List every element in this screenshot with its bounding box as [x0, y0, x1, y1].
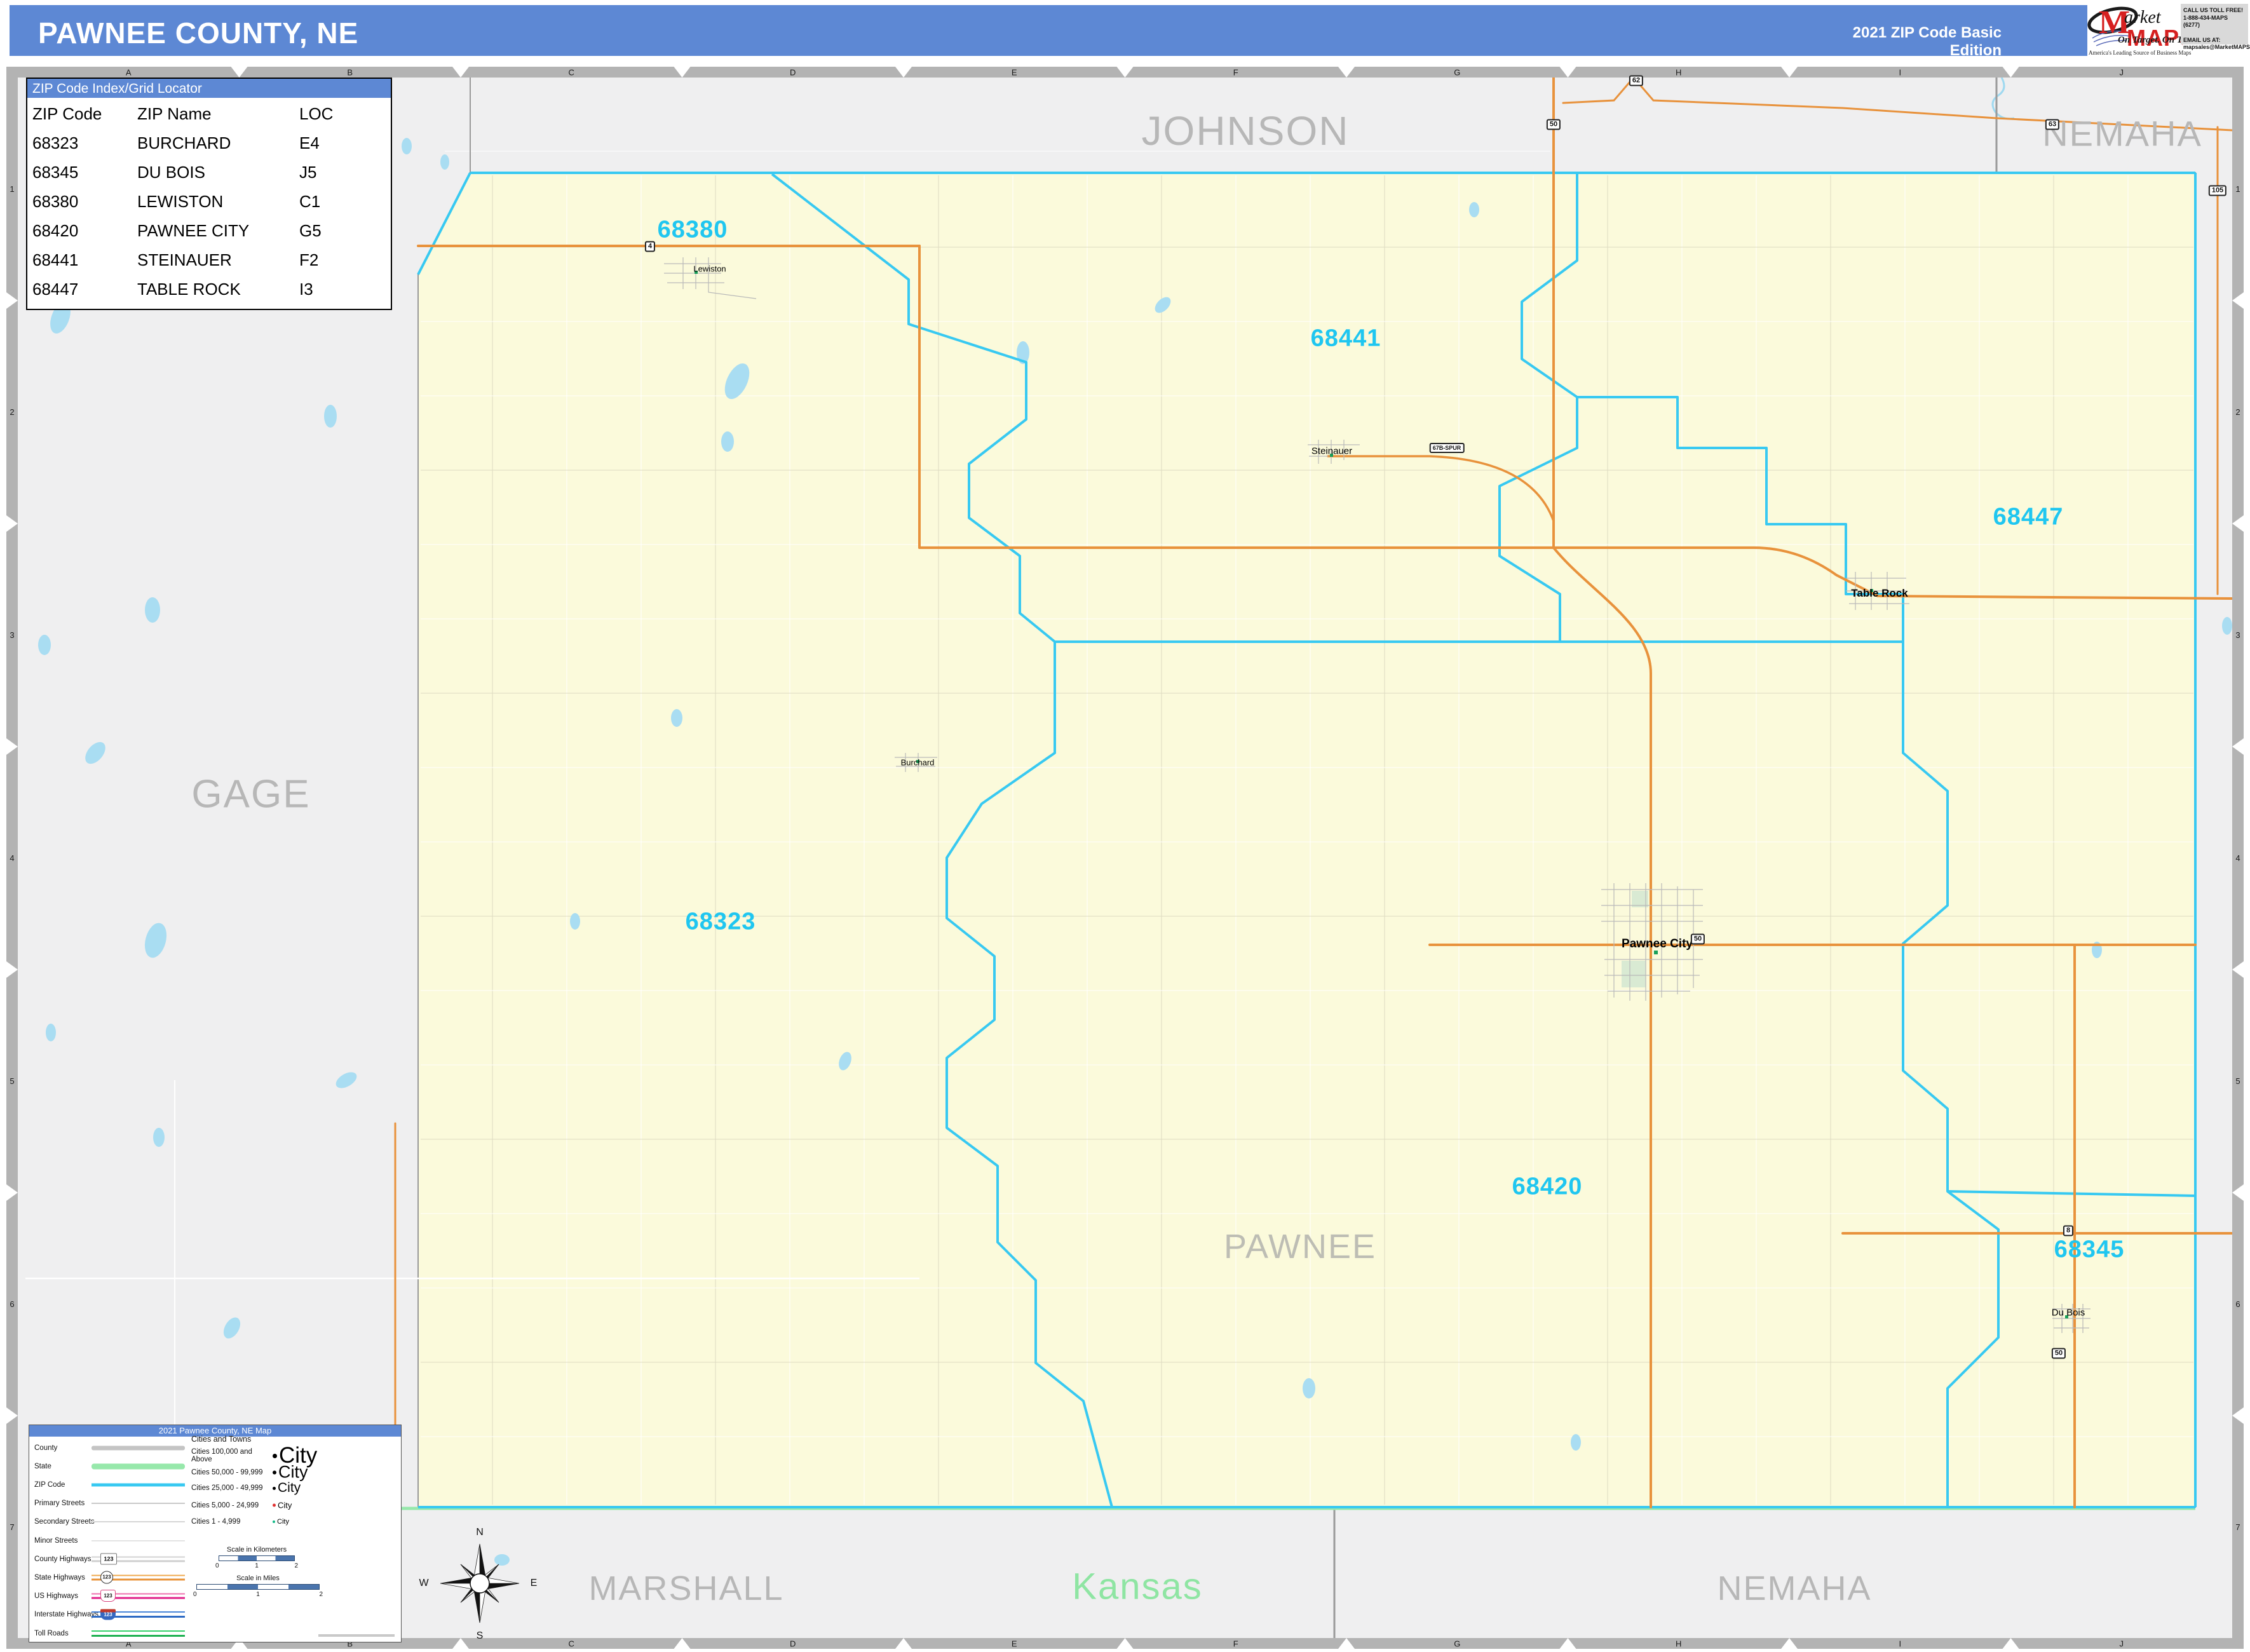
city-dot-icon: [273, 1487, 276, 1490]
grid-letter: C: [569, 68, 574, 78]
legend-city-label: Cities 1 - 4,999: [191, 1518, 273, 1526]
county-label: GAGE: [191, 772, 310, 817]
scale-tick: 0: [193, 1591, 197, 1598]
legend-city-label: Cities 25,000 - 49,999: [191, 1484, 273, 1492]
county-label: JOHNSON: [1142, 107, 1350, 154]
grid-letter: F: [1233, 68, 1238, 78]
highway-shield: 4: [645, 241, 655, 252]
highway-shield: 105: [2209, 186, 2226, 196]
legend-line-label: Toll Roads: [34, 1630, 69, 1637]
table-cell: I3: [299, 280, 376, 299]
grid-letter: B: [347, 68, 353, 78]
zip-index-table: ZIP Code Index/Grid Locator ZIP Code ZIP…: [26, 78, 392, 310]
legend-shield-icon: 123: [100, 1571, 113, 1583]
grid-letter: D: [790, 1639, 796, 1649]
marketmaps-logo: M arket MAPS On Target. On Time. America…: [2087, 0, 2250, 61]
grid-number: 6: [2235, 1299, 2240, 1309]
table-cell: LEWISTON: [137, 192, 299, 212]
legend: 2021 Pawnee County, NE Map CountyStateZI…: [29, 1425, 402, 1642]
county-label: PAWNEE: [1224, 1227, 1376, 1266]
highway-shield: 8: [2063, 1226, 2073, 1236]
grid-number: 3: [2235, 630, 2240, 640]
table-cell: TABLE ROCK: [137, 280, 299, 299]
legend-line-label: Interstate Highways: [34, 1611, 98, 1618]
cohwy-line-swatch: 123: [91, 1556, 185, 1562]
grid-letter: G: [1454, 68, 1460, 78]
zip-line-swatch: [91, 1483, 185, 1486]
minor-line-swatch: [91, 1540, 185, 1541]
table-cell: PAWNEE CITY: [137, 221, 299, 241]
county-label: NEMAHA: [1717, 1569, 1871, 1608]
grid-letter: C: [569, 1639, 574, 1649]
legend-city-label: Cities 5,000 - 24,999: [191, 1501, 273, 1509]
legend-city-row: Cities 1 - 4,999City: [191, 1518, 395, 1526]
grid-number: 1: [2235, 184, 2240, 194]
grid-letter: E: [1012, 1639, 1017, 1649]
legend-line-row: State Highways123: [29, 1568, 220, 1587]
grid-letter: H: [1676, 68, 1681, 78]
legend-line-label: State Highways: [34, 1574, 85, 1581]
legend-line-row: US Highways123: [29, 1587, 220, 1606]
legend-line-label: State: [34, 1463, 51, 1470]
zip-code-label: 68345: [2054, 1236, 2125, 1264]
table-cell: F2: [299, 250, 376, 270]
grid-number: 5: [2235, 1076, 2240, 1086]
ihwy-line-swatch: 123: [91, 1611, 185, 1618]
page-title: PAWNEE COUNTY, NE: [38, 16, 358, 50]
state-line-swatch: [91, 1463, 185, 1469]
table-row: 68447TABLE ROCKI3: [32, 274, 386, 304]
highway-shield: 62: [1629, 76, 1643, 86]
legend-city-row: Cities 5,000 - 24,999City: [191, 1501, 395, 1510]
county-label: NEMAHA: [2042, 113, 2202, 154]
legend-city-row: Cities 50,000 - 99,999City: [191, 1463, 395, 1482]
scale-tick: 2: [294, 1562, 298, 1569]
col-zip-code: ZIP Code: [32, 104, 137, 124]
edition-label: 2021 ZIP Code Basic Edition: [1820, 24, 2002, 60]
legend-city-sample: City: [273, 1518, 289, 1526]
county-line-swatch: [91, 1446, 185, 1450]
grid-number: 2: [2235, 407, 2240, 417]
grid-letter: J: [2120, 68, 2124, 78]
compass-e: E: [531, 1578, 538, 1589]
table-cell: DU BOIS: [137, 163, 299, 182]
table-cell: J5: [299, 163, 376, 182]
page: AABBCCDDEEFFGGHHIIJJ11223344556677 JOHNS…: [0, 0, 2250, 1652]
grid-number: 7: [10, 1522, 14, 1532]
table-cell: 68441: [32, 250, 137, 270]
county-label: Kansas: [1072, 1566, 1202, 1608]
highway-shield: 50: [2052, 1348, 2066, 1359]
grid-number: 2: [10, 407, 14, 417]
scale-tick: 1: [256, 1591, 260, 1598]
legend-city-sample: City: [273, 1463, 308, 1482]
scale-km-bar: [219, 1555, 295, 1561]
table-row: 68420PAWNEE CITYG5: [32, 216, 386, 245]
scale-km-ticks: 012: [215, 1562, 298, 1569]
ushwy-line-swatch: 123: [91, 1594, 185, 1599]
table-row: 68323BURCHARDE4: [32, 128, 386, 158]
legend-city-label: Cities 100,000 and Above: [191, 1448, 273, 1463]
city-label: Lewiston: [693, 264, 726, 274]
contact-box: CALL US TOLL FREE! 1-888-434-MAPS (6277)…: [2181, 4, 2248, 44]
legend-cities-header: Cities and Towns: [191, 1435, 251, 1444]
table-cell: 68345: [32, 163, 137, 182]
grid-number: 5: [10, 1076, 14, 1086]
city-label: Burchard: [901, 758, 935, 768]
zip-code-label: 68380: [658, 217, 728, 244]
scale-tick: 0: [215, 1562, 219, 1569]
zip-code-label: 68323: [686, 909, 756, 936]
highway-shield: 50: [1691, 934, 1705, 945]
table-row: 68345DU BOISJ5: [32, 158, 386, 187]
grid-number: 3: [10, 630, 14, 640]
grid-letter: H: [1676, 1639, 1681, 1649]
legend-line-label: US Highways: [34, 1592, 78, 1600]
grid-letter: D: [790, 68, 796, 78]
table-cell: 68420: [32, 221, 137, 241]
zip-index-title: ZIP Code Index/Grid Locator: [27, 79, 391, 98]
county-label: MARSHALL: [588, 1569, 783, 1608]
grid-number: 4: [10, 853, 14, 863]
city-dot-icon: [273, 1504, 276, 1507]
scale-mi-bar: [196, 1584, 320, 1590]
table-cell: G5: [299, 221, 376, 241]
sthwy-line-swatch: 123: [91, 1574, 185, 1580]
grid-letter: I: [1899, 1639, 1901, 1649]
table-cell: 68447: [32, 280, 137, 299]
city-dot-icon: [273, 1520, 275, 1523]
legend-line-row: Minor Streets: [29, 1531, 220, 1550]
table-row: 68380LEWISTONC1: [32, 187, 386, 216]
legend-line-row: Interstate Highways123: [29, 1606, 220, 1624]
legend-city-row: Cities 25,000 - 49,999City: [191, 1480, 395, 1496]
legend-line-label: Minor Streets: [34, 1537, 78, 1545]
grid-letter: G: [1454, 1639, 1460, 1649]
compass-s: S: [477, 1630, 484, 1642]
legend-shield-icon: 123: [100, 1590, 116, 1602]
zip-code-label: 68420: [1512, 1174, 1583, 1201]
legend-shield-icon: 123: [100, 1609, 116, 1620]
grid-number: 7: [2235, 1522, 2240, 1532]
secondary-line-swatch: [91, 1521, 185, 1522]
primary-line-swatch: [91, 1503, 185, 1504]
table-cell: C1: [299, 192, 376, 212]
city-label: Table Rock: [1851, 587, 1908, 600]
legend-city-sample: City: [273, 1501, 292, 1510]
grid-letter: I: [1899, 68, 1901, 78]
scale-km-label: Scale in Kilometers: [219, 1546, 295, 1554]
grid-letter: A: [126, 68, 132, 78]
grid-number: 6: [10, 1299, 14, 1309]
scale-mi-label: Scale in Miles: [220, 1574, 296, 1582]
legend-line-label: County: [34, 1444, 57, 1452]
table-row: 68441STEINAUERF2: [32, 245, 386, 274]
scale-tick: 2: [319, 1591, 323, 1598]
logo-subtitle: America's Leading Source of Business Map…: [2089, 50, 2191, 56]
table-cell: E4: [299, 133, 376, 153]
city-dot-icon: [273, 1470, 276, 1474]
grid-letter: J: [2120, 1639, 2124, 1649]
city-label: Du Bois: [2052, 1308, 2085, 1318]
scale-tick: 1: [255, 1562, 259, 1569]
grid-letter: E: [1012, 68, 1017, 78]
legend-line-label: County Highways: [34, 1555, 91, 1563]
table-cell: 68380: [32, 192, 137, 212]
legend-city-label: Cities 50,000 - 99,999: [191, 1468, 273, 1476]
zip-code-label: 68447: [1993, 504, 2064, 531]
legend-line-row: County Highways123: [29, 1550, 220, 1568]
compass-w: W: [419, 1578, 428, 1589]
grid-number: 4: [2235, 853, 2240, 863]
legend-city-sample: City: [273, 1480, 301, 1496]
city-label: Steinauer: [1311, 446, 1352, 457]
legend-shield-icon: 123: [100, 1553, 117, 1564]
table-cell: 68323: [32, 133, 137, 153]
header-bar: PAWNEE COUNTY, NE 2021 ZIP Code Basic Ed…: [10, 5, 2087, 56]
legend-line-row: Toll Roads: [29, 1624, 220, 1642]
grid-number: 1: [10, 184, 14, 194]
legend-line-label: ZIP Code: [34, 1481, 65, 1489]
highway-shield: 63: [2045, 119, 2059, 130]
toll-line-swatch: [91, 1630, 185, 1637]
col-zip-name: ZIP Name: [137, 104, 299, 124]
grid-letter: F: [1233, 1639, 1238, 1649]
compass-n: N: [476, 1527, 484, 1538]
city-label: Pawnee City: [1622, 937, 1693, 951]
table-cell: BURCHARD: [137, 133, 299, 153]
zip-index-header: ZIP Code ZIP Name LOC: [32, 99, 386, 128]
table-cell: STEINAUER: [137, 250, 299, 270]
legend-copyright: [318, 1634, 395, 1637]
scale-mi-ticks: 012: [193, 1591, 323, 1598]
legend-line-label: Primary Streets: [34, 1500, 85, 1507]
col-loc: LOC: [299, 104, 376, 124]
zip-code-label: 68441: [1311, 325, 1381, 353]
city-dot-icon: [273, 1454, 277, 1458]
highway-shield: 67B-SPUR: [1430, 443, 1465, 453]
highway-shield: 50: [1547, 119, 1561, 130]
legend-line-label: Secondary Streets: [34, 1518, 95, 1526]
pawnee-county-area: [418, 173, 2195, 1507]
